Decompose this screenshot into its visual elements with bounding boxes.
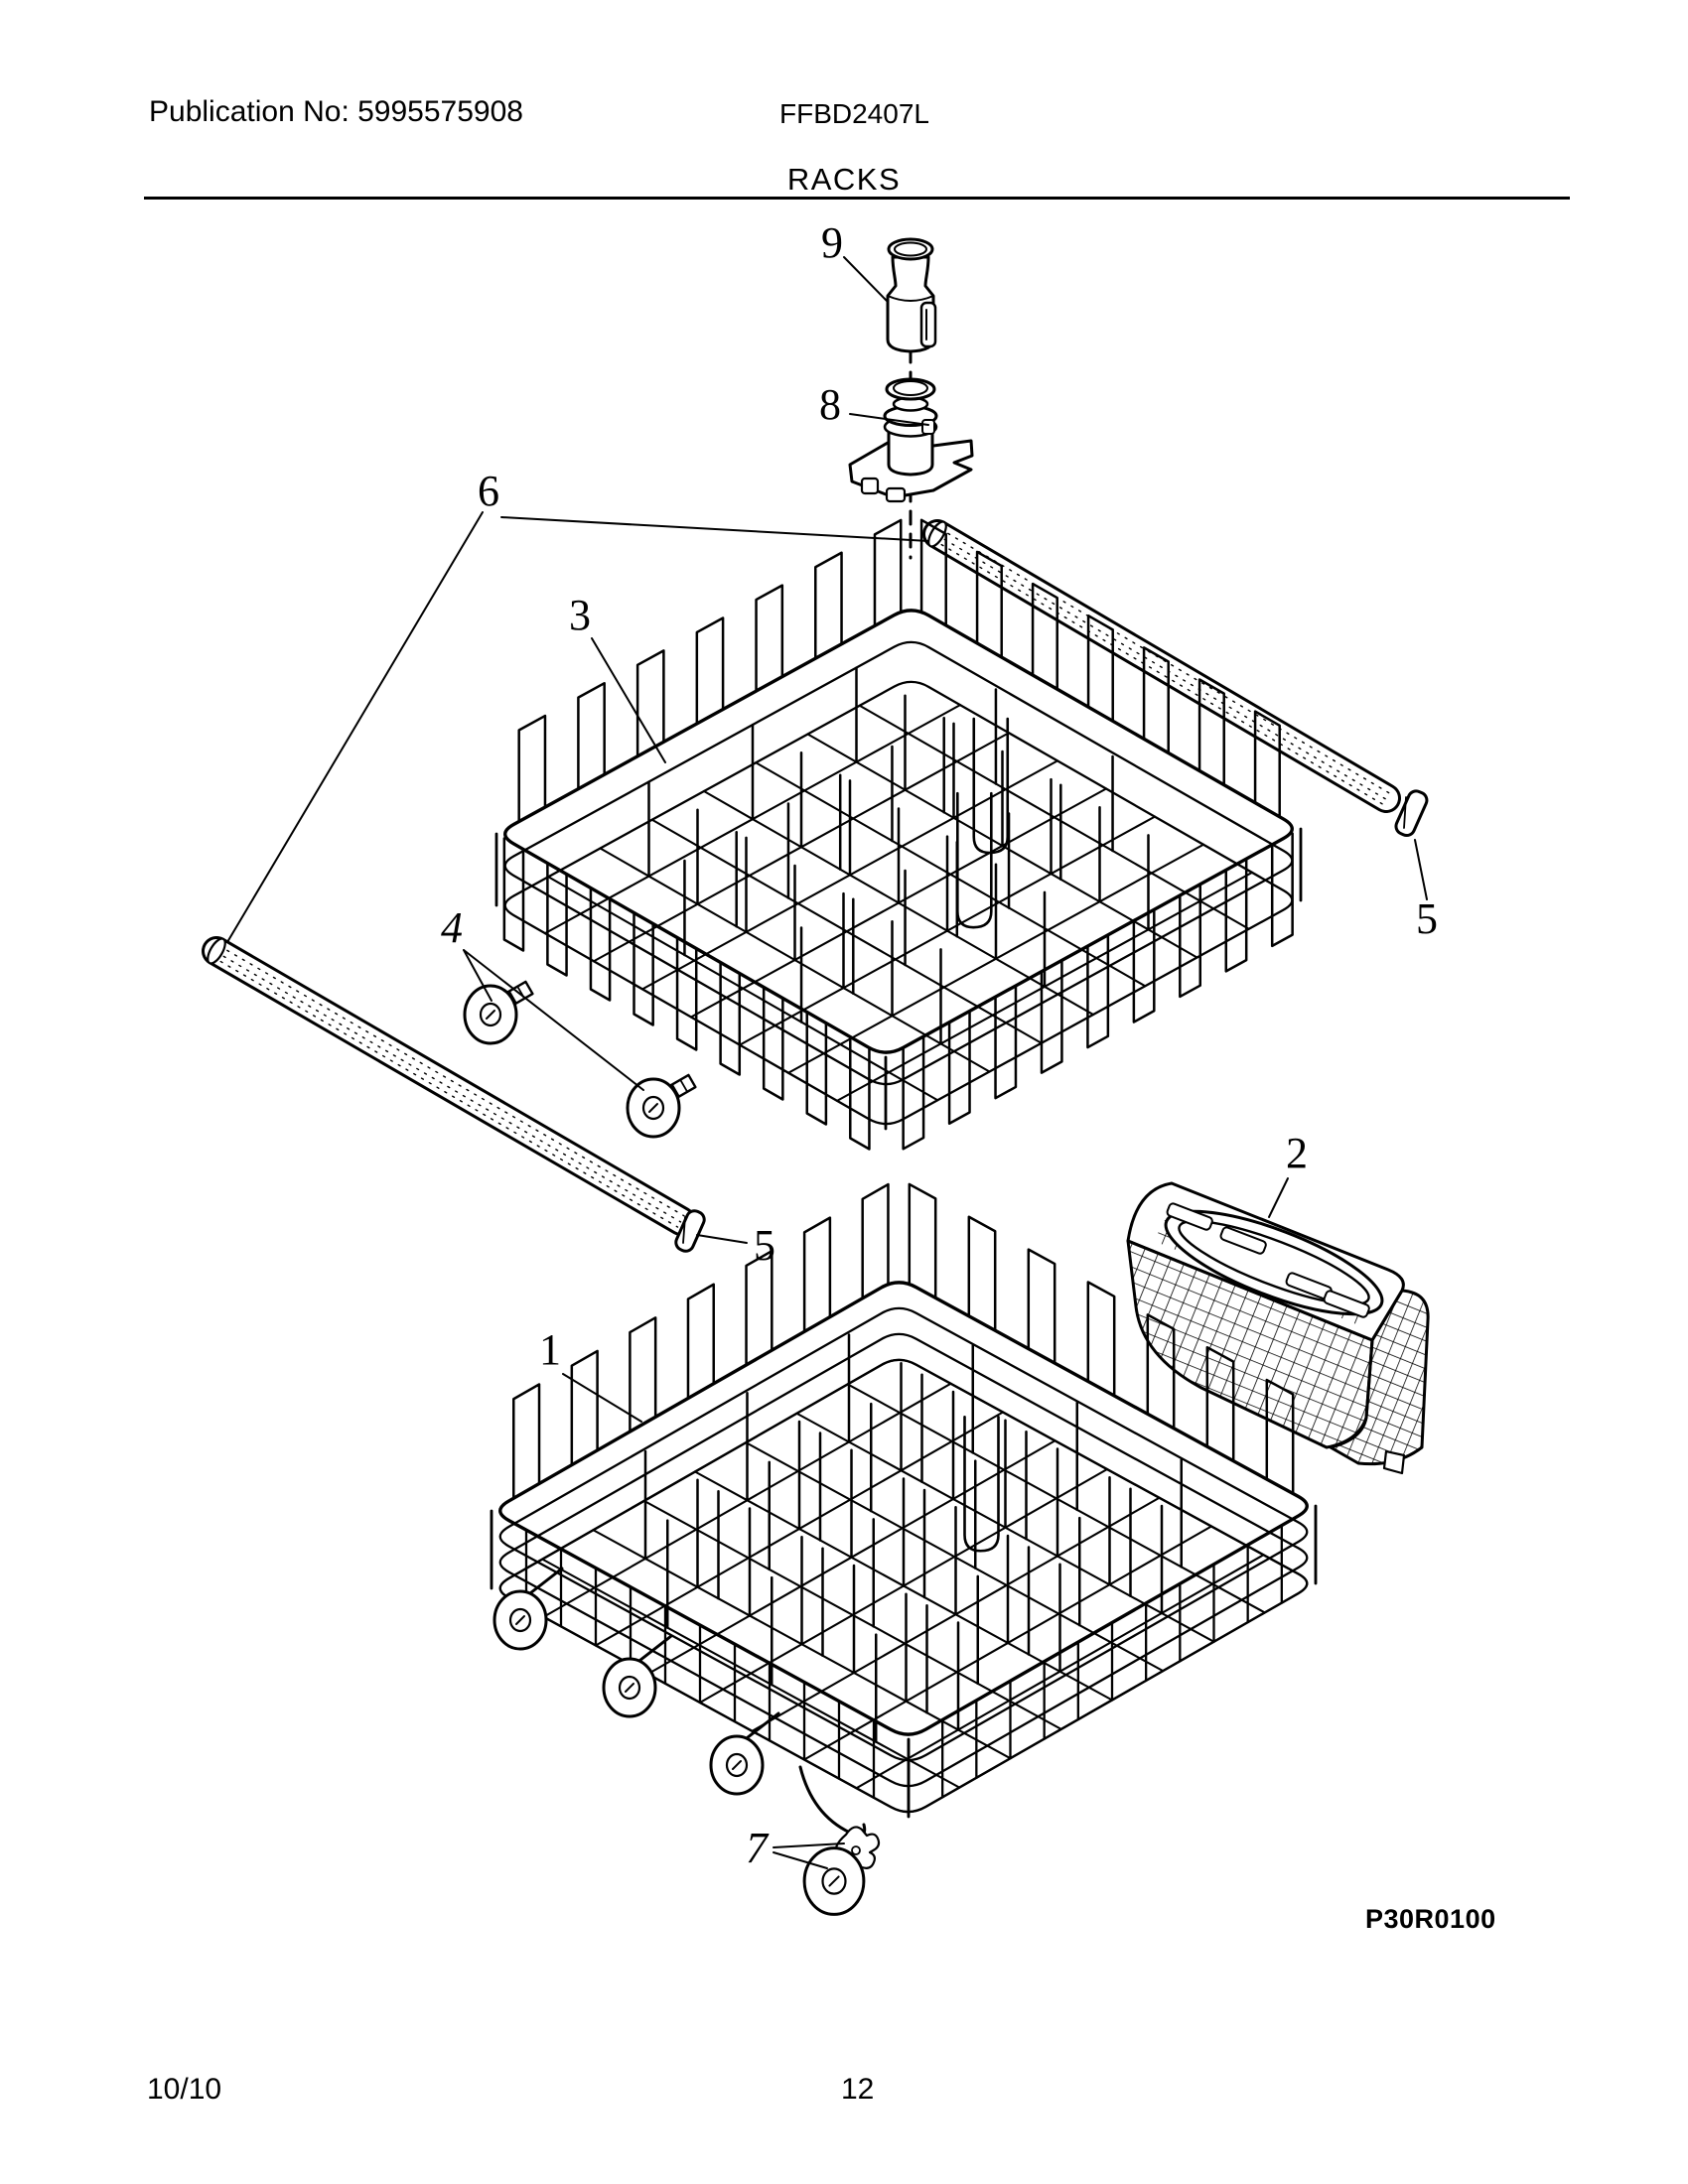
callout-label-3: 3: [569, 594, 591, 637]
callout-label-5-left: 5: [754, 1224, 775, 1268]
parts-diagram-page: Publication No: 5995575908 FFBD2407L RAC…: [0, 0, 1688, 2184]
callout-label-1: 1: [539, 1328, 561, 1372]
lower-rack-wheel-part7: [800, 1767, 879, 1914]
callout-label-5-right: 5: [1416, 897, 1438, 941]
slide-rails-part6: [205, 519, 1389, 1227]
diagram-code: P30R0100: [1365, 1904, 1496, 1935]
callout-label-2: 2: [1286, 1132, 1308, 1175]
footer-page-number: 12: [841, 2073, 874, 2107]
footer-issue-date: 10/10: [147, 2073, 221, 2107]
callout-label-8: 8: [819, 383, 841, 427]
callout-label-6: 6: [478, 470, 499, 513]
upper-rack-part3: [496, 520, 1301, 1150]
racks-exploded-diagram: [0, 0, 1688, 2184]
callout-label-4: 4: [441, 906, 463, 950]
callout-label-7: 7: [746, 1827, 768, 1870]
callout-label-9: 9: [821, 221, 843, 265]
spray-tube-part9: [888, 239, 935, 351]
tube-dock-part8: [850, 379, 972, 501]
